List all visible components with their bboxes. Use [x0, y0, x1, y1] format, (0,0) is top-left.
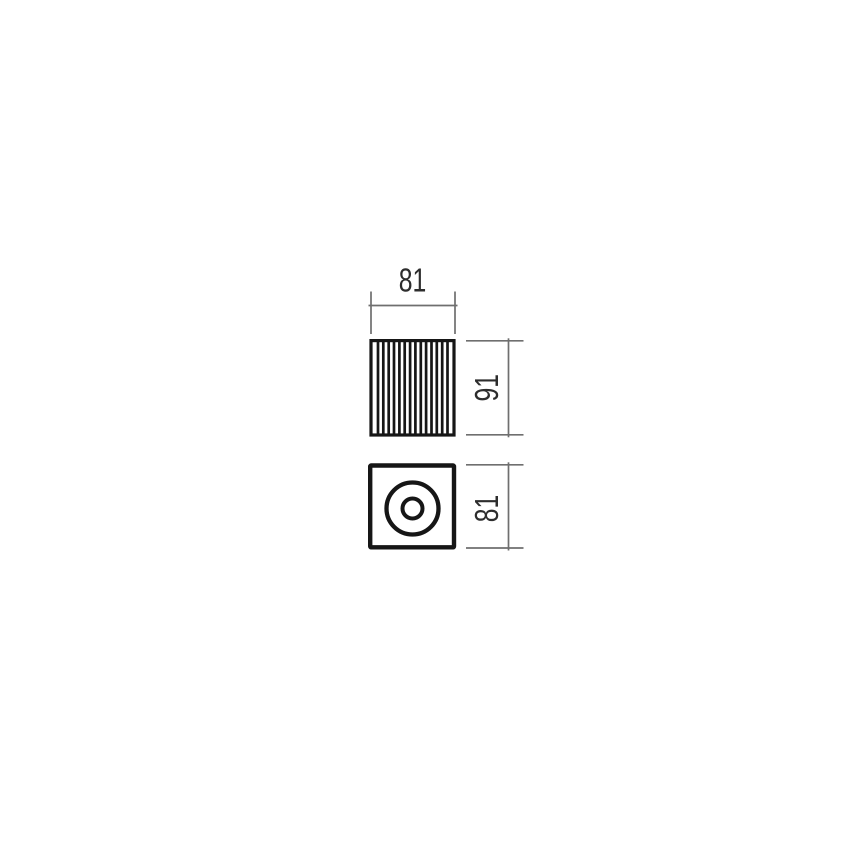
bottom-height-dimension: 81 [466, 462, 524, 550]
height-dimension: 91 [466, 338, 524, 437]
front-view-ribbed-body [371, 341, 454, 435]
dimension-drawing: 81 91 81 [0, 0, 868, 868]
technical-drawing-canvas: 81 91 81 [0, 0, 868, 868]
height-dimension-label: 91 [470, 374, 506, 402]
bottom-height-dimension-label: 81 [470, 495, 506, 523]
width-dimension: 81 [369, 263, 458, 334]
bottom-view-aperture [370, 466, 454, 548]
width-dimension-label: 81 [399, 263, 427, 299]
